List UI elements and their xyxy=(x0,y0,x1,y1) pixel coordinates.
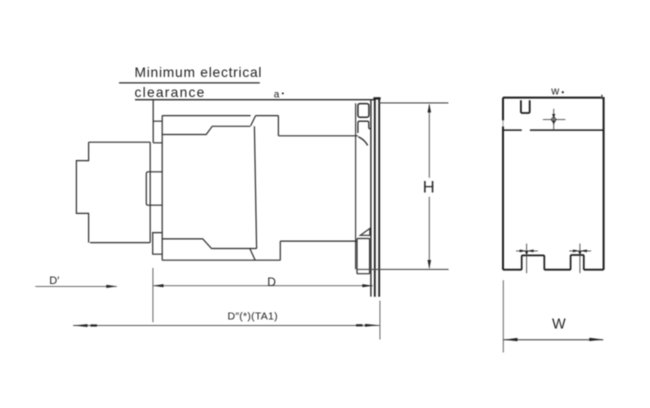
svg-text:clearance: clearance xyxy=(135,85,206,100)
svg-text:D″(*)(TA1): D″(*)(TA1) xyxy=(228,310,278,322)
svg-text:D′: D′ xyxy=(49,275,59,287)
svg-text:W: W xyxy=(552,317,566,333)
svg-text:w: w xyxy=(550,86,559,98)
svg-text:D: D xyxy=(267,275,276,289)
svg-text:a: a xyxy=(274,90,280,101)
svg-text:H: H xyxy=(423,179,435,197)
svg-text:Minimum electrical: Minimum electrical xyxy=(135,65,263,80)
